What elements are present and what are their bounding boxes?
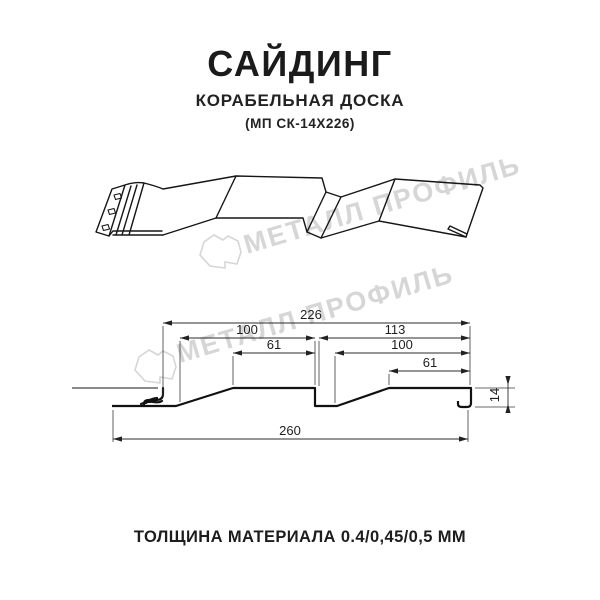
dimension-label-height: 14 bbox=[487, 388, 502, 402]
technical-drawing: МЕТАЛЛ ПРОФИЛЬ МЕТАЛЛ ПРОФИЛЬ bbox=[0, 0, 600, 600]
dimension-label-right-top: 61 bbox=[423, 355, 437, 370]
nail-hole bbox=[114, 194, 122, 200]
dimension-label-full-width: 260 bbox=[279, 423, 301, 438]
watermark-upper bbox=[200, 235, 241, 268]
metal-profile-logo-icon bbox=[200, 235, 241, 268]
product-sheet: САЙДИНГ КОРАБЕЛЬНАЯ ДОСКА (МП СК-14Х226)… bbox=[0, 0, 600, 600]
nail-hole bbox=[102, 225, 110, 231]
dimension-label-left-top: 61 bbox=[267, 337, 281, 352]
dimension-label-overall: 226 bbox=[300, 307, 322, 322]
metal-profile-logo-icon bbox=[135, 350, 176, 383]
nail-hole bbox=[108, 209, 116, 215]
dimension-lines bbox=[113, 323, 508, 439]
dimension-arrows bbox=[113, 320, 511, 441]
svg-text:МЕТАЛЛ ПРОФИЛЬ: МЕТАЛЛ ПРОФИЛЬ bbox=[240, 149, 524, 259]
dimension-label-right-module: 113 bbox=[385, 322, 406, 337]
section-profile bbox=[112, 388, 471, 407]
watermark-upper-text: МЕТАЛЛ ПРОФИЛЬ bbox=[240, 149, 524, 259]
lock-curl bbox=[141, 388, 163, 406]
watermark-lower bbox=[135, 350, 176, 383]
dimension-label-right-inner: 100 bbox=[391, 337, 413, 352]
nail-strip bbox=[96, 185, 125, 236]
dimension-label-left-module: 100 bbox=[236, 322, 258, 337]
thickness-note: ТОЛЩИНА МАТЕРИАЛА 0.4/0,45/0,5 ММ bbox=[0, 528, 600, 547]
